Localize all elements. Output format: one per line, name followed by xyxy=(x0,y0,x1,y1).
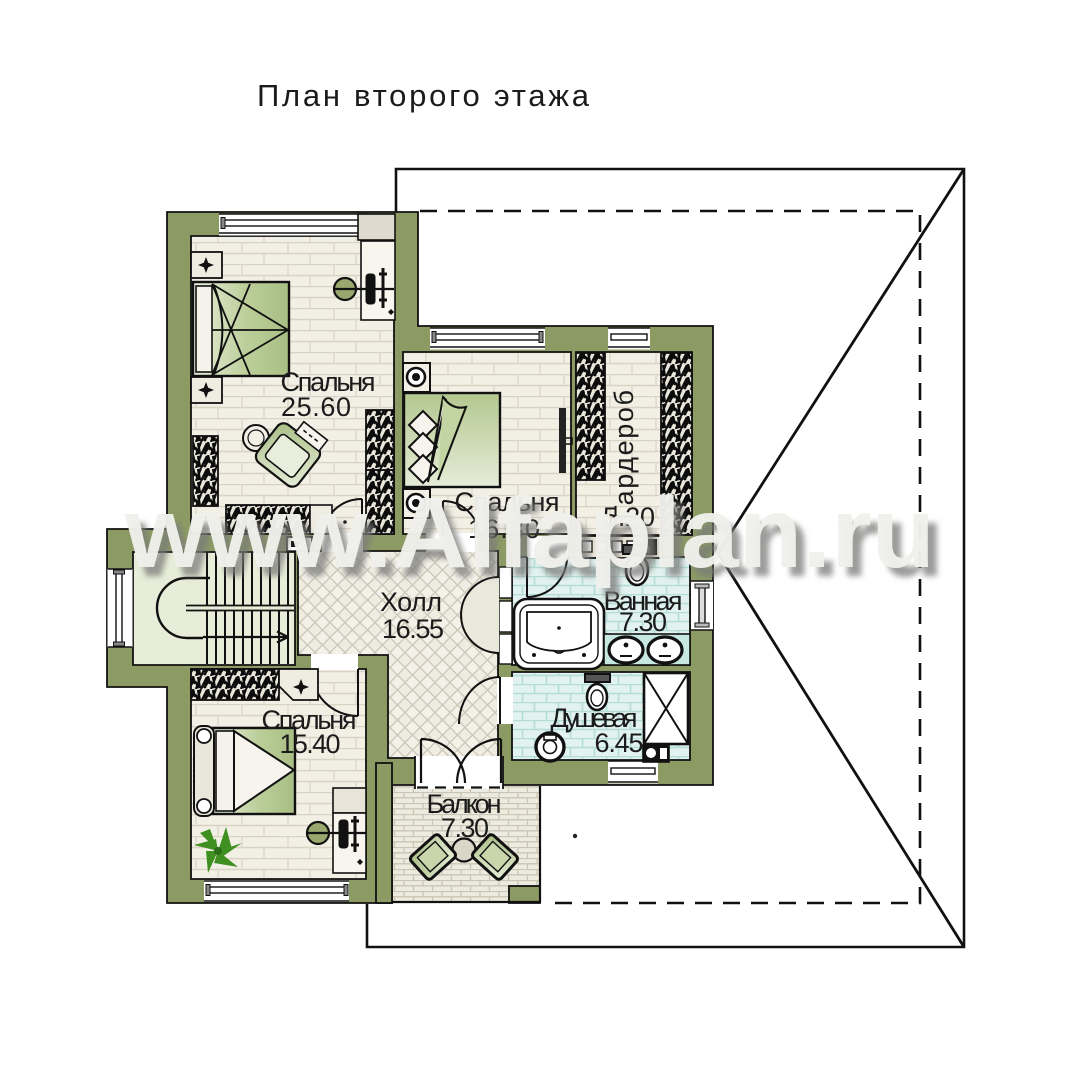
svg-text:7.30: 7.30 xyxy=(441,813,489,843)
svg-text:www.Alfaplan.ru: www.Alfaplan.ru xyxy=(124,477,935,589)
svg-text:15.40: 15.40 xyxy=(280,729,341,759)
svg-text:7.30: 7.30 xyxy=(619,607,667,637)
svg-text:25.60: 25.60 xyxy=(281,392,351,422)
svg-text:16.55: 16.55 xyxy=(382,614,444,644)
svg-text:План второго этажа: План второго этажа xyxy=(257,78,591,113)
svg-text:6.45: 6.45 xyxy=(595,728,644,758)
